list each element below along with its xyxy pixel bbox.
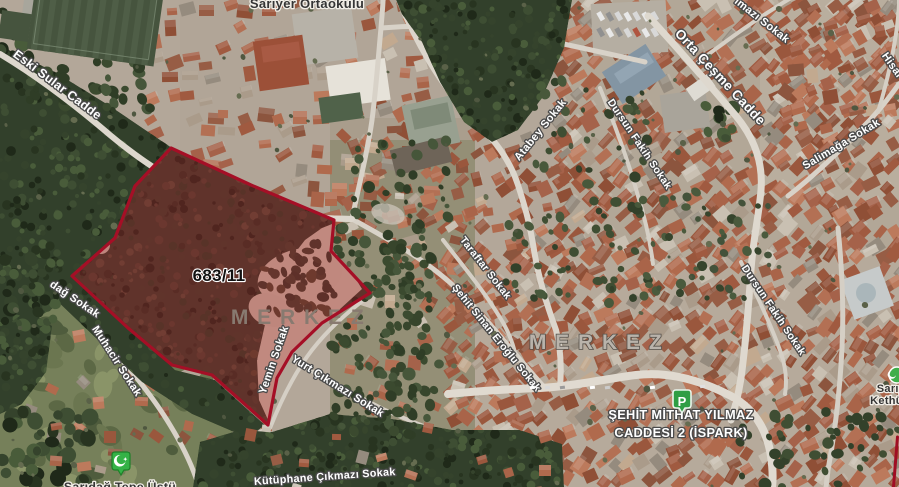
svg-text:P: P — [678, 394, 687, 409]
svg-text:Sarıdağ Tepe Üstü: Sarıdağ Tepe Üstü — [64, 479, 176, 487]
svg-text:Kethüd: Kethüd — [870, 395, 899, 407]
svg-text:683/11: 683/11 — [193, 266, 246, 285]
svg-text:Sarıy: Sarıy — [877, 383, 899, 395]
svg-text:M E R K E Z: M E R K E Z — [529, 331, 663, 354]
svg-text:Sarıyer Ortaokulu: Sarıyer Ortaokulu — [250, 0, 364, 11]
svg-text:CADDESİ 2 (İSPARK): CADDESİ 2 (İSPARK) — [614, 425, 747, 440]
